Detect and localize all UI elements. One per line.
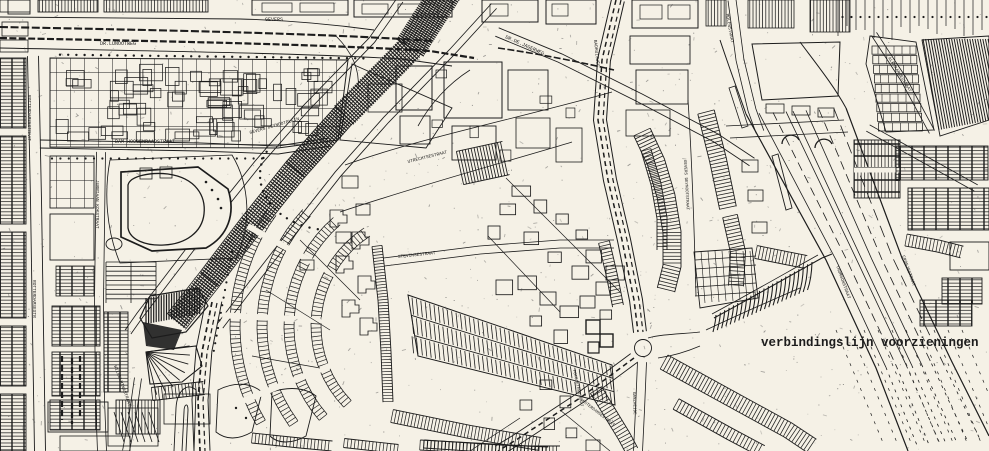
svg-text:ROTTERDAMSESTR: ROTTERDAMSESTR xyxy=(31,280,37,318)
svg-text:JURRIAAN KOKSTRAAT: JURRIAAN KOKSTRAAT xyxy=(94,180,100,229)
svg-text:DAM HOOGENRAADSTRAAT: DAM HOOGENRAADSTRAAT xyxy=(115,139,175,145)
svg-text:GEVERS: GEVERS xyxy=(265,17,283,23)
svg-text:GANZHEIDE: GANZHEIDE xyxy=(631,392,636,415)
svg-text:DR.LUNOOTWEG: DR.LUNOOTWEG xyxy=(100,41,136,47)
svg-text:verbindingslijn voorzieningen: verbindingslijn voorzieningen xyxy=(761,336,979,350)
svg-text:ROTTERDAMSESTRAAT: ROTTERDAMSESTRAAT xyxy=(26,95,32,141)
